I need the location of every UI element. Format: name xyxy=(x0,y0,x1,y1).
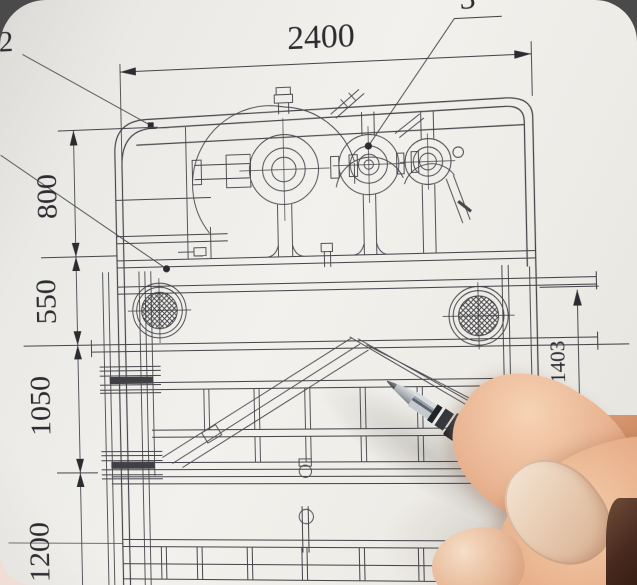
hand-shadow xyxy=(380,470,637,585)
dimension-1403: 1403 xyxy=(540,286,602,435)
dimension-2400: 2400 xyxy=(119,8,533,171)
part-label-2-text: 2 xyxy=(0,24,13,58)
gearbox-view xyxy=(114,80,472,272)
part-label-3-text: 3 xyxy=(459,0,476,16)
dim-1050-text: 1050 xyxy=(23,376,57,436)
dim-1403-text: 1403 xyxy=(546,341,570,384)
photo-of-drawing: 2 3 2400 xyxy=(0,0,637,585)
dim-800-text: 800 xyxy=(30,174,63,220)
dim-1200-text: 1200 xyxy=(23,522,57,582)
part-label-2: 2 xyxy=(0,17,154,134)
dim-550-text: 550 xyxy=(29,279,62,325)
dim-2400-text: 2400 xyxy=(287,16,355,57)
bearing-left xyxy=(127,277,192,343)
leader-left-edge xyxy=(1,149,170,276)
